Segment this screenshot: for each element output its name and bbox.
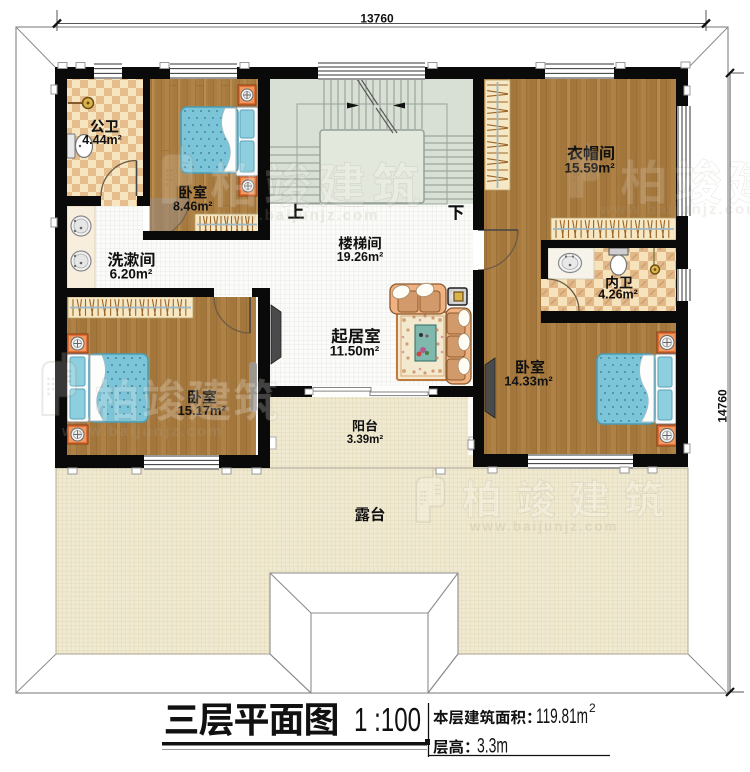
svg-text:3.39m²: 3.39m²: [347, 434, 384, 446]
svg-text:119.81m: 119.81m: [536, 705, 588, 728]
svg-text:14.33m²: 14.33m²: [504, 374, 553, 389]
svg-text:13760: 13760: [360, 12, 394, 26]
svg-text:www.baijunjz.com: www.baijunjz.com: [217, 207, 379, 224]
svg-text:11.50m²: 11.50m²: [330, 344, 380, 359]
svg-text:14760: 14760: [716, 389, 730, 423]
svg-text:1 :100: 1 :100: [354, 701, 421, 738]
svg-text:3.3m: 3.3m: [477, 735, 508, 758]
svg-text:6.20m²: 6.20m²: [110, 267, 153, 282]
svg-text:8.46m²: 8.46m²: [173, 200, 213, 214]
svg-text:4.44m²: 4.44m²: [82, 133, 122, 147]
svg-text:www.baijunjz.com: www.baijunjz.com: [61, 423, 223, 440]
svg-text:4.26m²: 4.26m²: [598, 288, 638, 302]
svg-text:www.baijunjz.com: www.baijunjz.com: [469, 519, 619, 534]
svg-text:2: 2: [589, 701, 596, 715]
svg-text:www.baijunjz.com: www.baijunjz.com: [599, 201, 750, 218]
svg-text:19.26m²: 19.26m²: [337, 250, 384, 264]
